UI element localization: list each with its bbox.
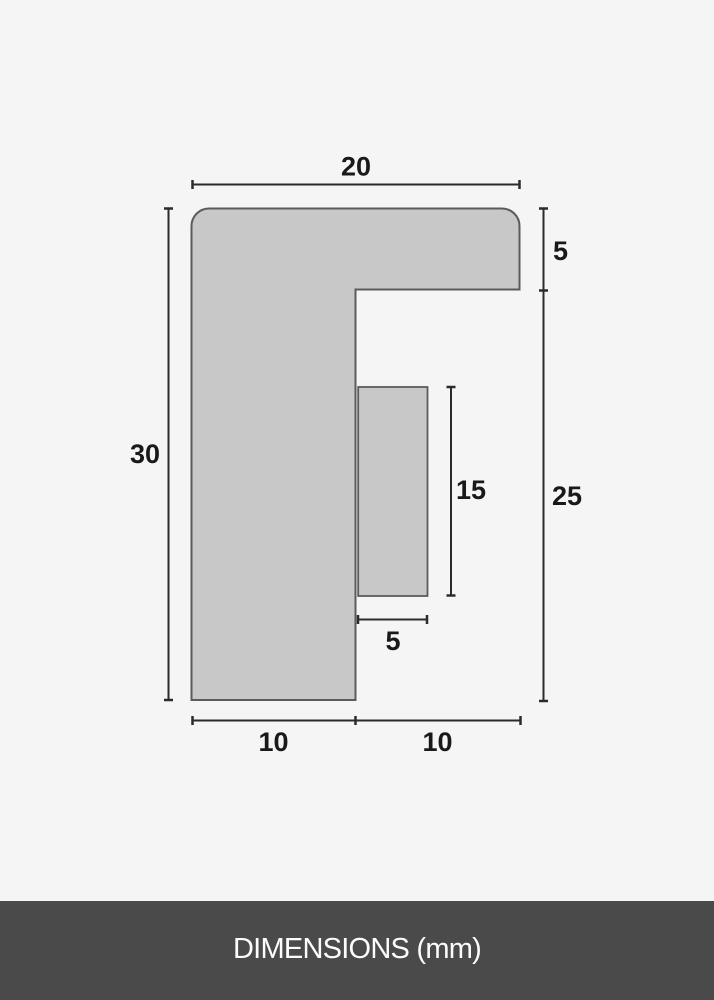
svg-text:30: 30: [130, 439, 160, 469]
svg-text:5: 5: [553, 236, 568, 266]
svg-text:5: 5: [385, 626, 400, 656]
svg-text:15: 15: [456, 475, 486, 505]
svg-text:10: 10: [422, 727, 452, 757]
svg-text:10: 10: [258, 727, 288, 757]
svg-text:20: 20: [341, 152, 371, 182]
svg-text:25: 25: [552, 481, 582, 511]
